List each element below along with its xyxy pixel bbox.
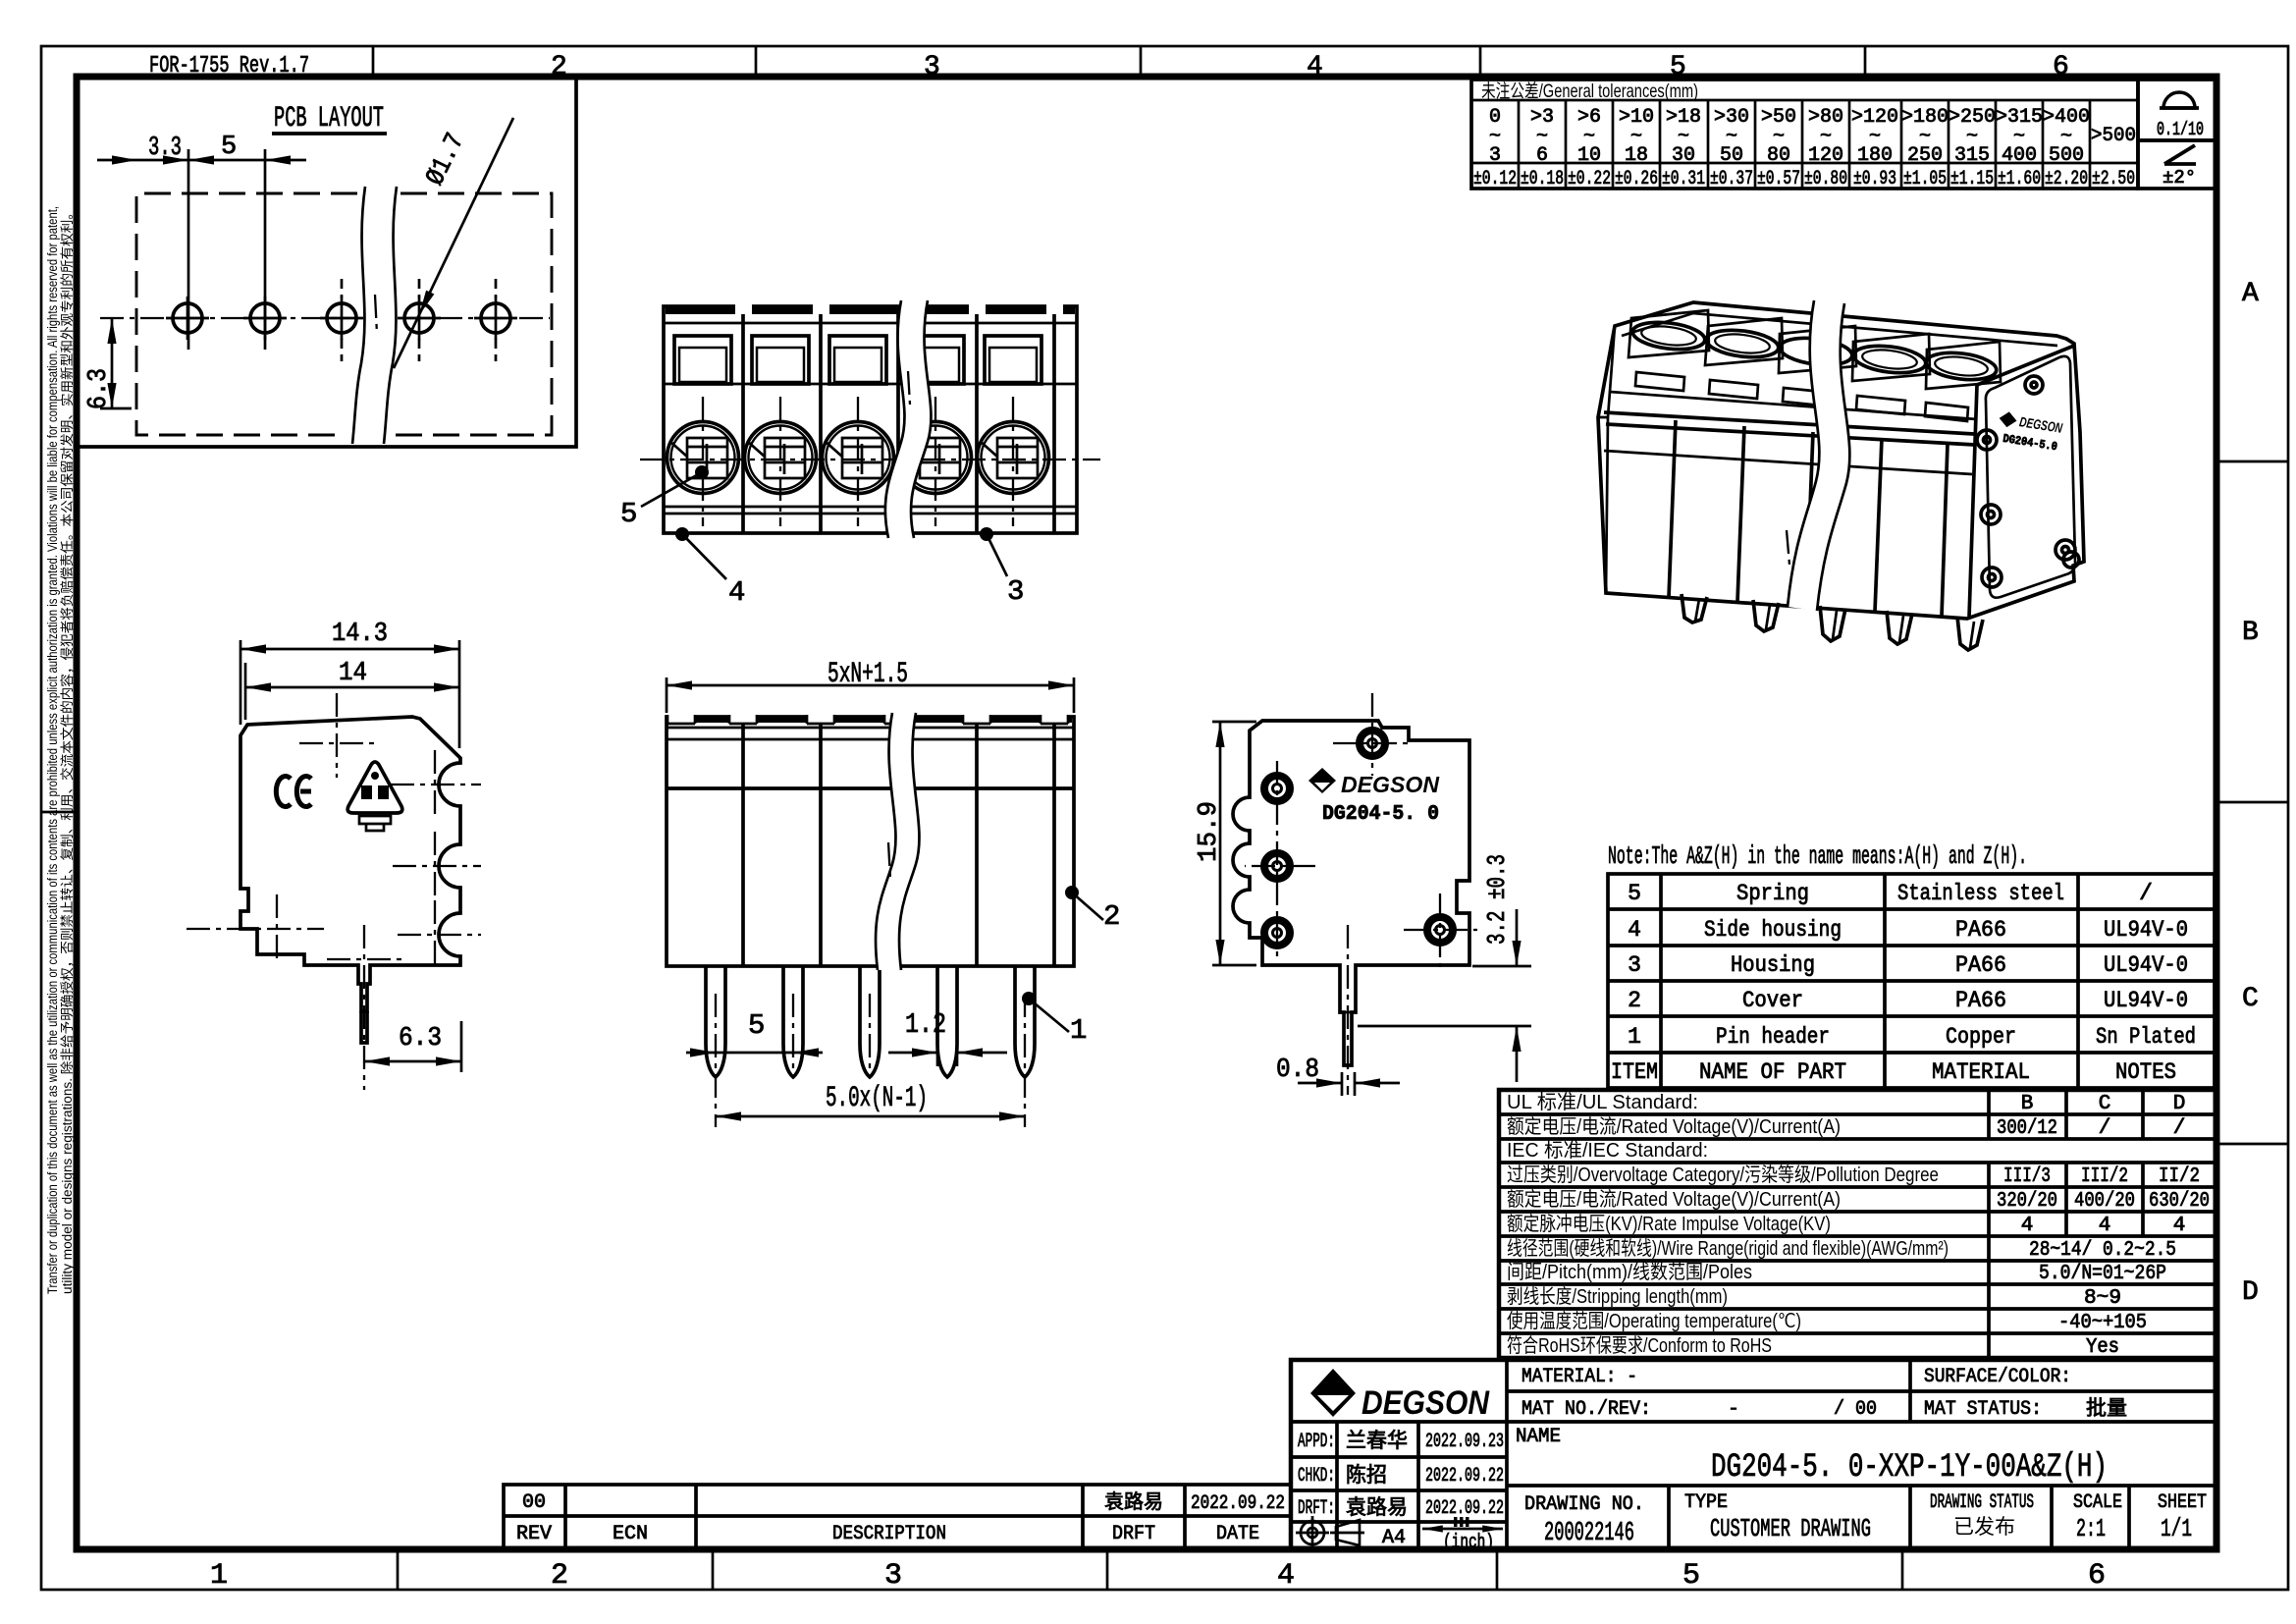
svg-text:8~9: 8~9 (2084, 1287, 2121, 1310)
svg-text:±2.50: ±2.50 (2092, 168, 2135, 190)
svg-text:陈招: 陈招 (1346, 1464, 1387, 1487)
svg-text:CHKD:: CHKD: (1298, 1465, 1335, 1488)
svg-text:III/2: III/2 (2081, 1165, 2128, 1188)
svg-text:符合RoHS环保要求/Conform to RoHS: 符合RoHS环保要求/Conform to RoHS (1507, 1334, 1772, 1357)
svg-text:DG204-5. 0: DG204-5. 0 (1322, 803, 1439, 826)
svg-text:6.3: 6.3 (399, 1024, 442, 1054)
svg-text:±0.12: ±0.12 (1473, 168, 1517, 190)
svg-text:2022.09.22: 2022.09.22 (1425, 1497, 1504, 1520)
svg-text:±2.20: ±2.20 (2045, 168, 2088, 190)
svg-text:4: 4 (728, 576, 745, 609)
svg-text:1.2: 1.2 (905, 1008, 946, 1041)
svg-text:III/3: III/3 (2003, 1165, 2051, 1188)
svg-text:Pin header: Pin header (1716, 1024, 1830, 1050)
svg-text:II/2: II/2 (2159, 1165, 2200, 1188)
svg-text:袁路易: 袁路易 (1104, 1490, 1163, 1513)
svg-text:额定脉冲电压(KV)/Rate Impulse Voltag: 额定脉冲电压(KV)/Rate Impulse Voltage(KV) (1507, 1213, 1831, 1235)
svg-text:2022.09.23: 2022.09.23 (1425, 1431, 1504, 1453)
svg-text:200022146: 200022146 (1544, 1519, 1634, 1548)
svg-text:2: 2 (1103, 900, 1120, 933)
svg-text:315: 315 (1954, 144, 1990, 167)
svg-text:±1.05: ±1.05 (1903, 168, 1947, 190)
svg-text:250: 250 (1907, 144, 1943, 167)
svg-text:Note:The A&Z(H) in the name me: Note:The A&Z(H) in the name means:A(H) a… (1608, 841, 2027, 871)
svg-text:5: 5 (748, 1009, 765, 1042)
svg-text:袁路易: 袁路易 (1346, 1496, 1408, 1519)
svg-text:50: 50 (1720, 144, 1743, 167)
svg-text:±0.22: ±0.22 (1568, 168, 1611, 190)
svg-text:5: 5 (1628, 881, 1641, 906)
svg-text:兰春华: 兰春华 (1346, 1430, 1408, 1452)
svg-text:DATE: DATE (1216, 1523, 1259, 1545)
svg-text:5xN+1.5: 5xN+1.5 (828, 658, 908, 691)
svg-text:±1.15: ±1.15 (1950, 168, 1994, 190)
svg-text:MAT STATUS:: MAT STATUS: (1924, 1398, 2042, 1421)
svg-text:3: 3 (884, 1559, 902, 1593)
svg-text:6: 6 (1536, 144, 1548, 167)
svg-text:-40~+105: -40~+105 (2058, 1312, 2147, 1334)
svg-text:A: A (2242, 279, 2259, 309)
svg-text:14.3: 14.3 (332, 620, 388, 649)
svg-text:4: 4 (1277, 1559, 1295, 1593)
svg-text:320/20: 320/20 (1997, 1190, 2057, 1213)
svg-text:/: / (2099, 1117, 2111, 1140)
svg-text:Side housing: Side housing (1704, 917, 1842, 943)
svg-text:±0.18: ±0.18 (1521, 168, 1564, 190)
svg-text:剥线长度/Stripping length(mm): 剥线长度/Stripping length(mm) (1507, 1285, 1728, 1308)
svg-text:utility model or designs regis: utility model or designs registrations. … (59, 206, 75, 1294)
svg-text:D: D (2173, 1093, 2186, 1115)
svg-text:/ 00: / 00 (1834, 1398, 1877, 1421)
svg-text:Copper: Copper (1946, 1024, 2016, 1050)
svg-text:1: 1 (210, 1559, 228, 1593)
svg-text:额定电压/电流/Rated Voltage(V)/Curre: 额定电压/电流/Rated Voltage(V)/Current(A) (1507, 1115, 1841, 1138)
svg-text:±0.57: ±0.57 (1757, 168, 1800, 190)
svg-text:2022.09.22: 2022.09.22 (1191, 1492, 1285, 1515)
svg-text:B: B (2021, 1093, 2034, 1115)
svg-text:4: 4 (2021, 1215, 2034, 1237)
svg-text:DEGSON: DEGSON (1341, 772, 1439, 797)
svg-text:Spring: Spring (1736, 881, 1809, 906)
svg-text:300/12: 300/12 (1997, 1117, 2057, 1140)
svg-text:1: 1 (1070, 1014, 1087, 1047)
svg-text:400/20: 400/20 (2074, 1190, 2135, 1213)
svg-text:Housing: Housing (1731, 952, 1815, 978)
svg-text:线径范围(硬线和软线)/Wire Range(rigid a: 线径范围(硬线和软线)/Wire Range(rigid and flexibl… (1507, 1237, 1949, 1260)
svg-text:±1.60: ±1.60 (1998, 168, 2041, 190)
svg-text:批量: 批量 (2086, 1397, 2127, 1420)
svg-text:UL94V-0: UL94V-0 (2104, 988, 2188, 1013)
svg-text:4: 4 (1307, 52, 1323, 82)
svg-text:SHEET: SHEET (2158, 1491, 2207, 1514)
svg-text:28~14/ 0.2~2.5: 28~14/ 0.2~2.5 (2029, 1239, 2176, 1262)
svg-text:/: / (2139, 881, 2153, 906)
svg-text:未注公差/General tolerances(mm): 未注公差/General tolerances(mm) (1481, 81, 1698, 102)
svg-text:UL94V-0: UL94V-0 (2104, 917, 2188, 943)
svg-text:0.1/10: 0.1/10 (2157, 119, 2204, 140)
svg-text:使用温度范围/Operating temperature(℃: 使用温度范围/Operating temperature(℃) (1507, 1310, 1801, 1332)
svg-text:PA66: PA66 (1955, 988, 2006, 1013)
svg-text:1: 1 (1628, 1024, 1641, 1050)
svg-text:DG204-5. 0-XXP-1Y-00A&Z(H): DG204-5. 0-XXP-1Y-00A&Z(H) (1711, 1449, 2108, 1487)
svg-text:3.3: 3.3 (148, 134, 182, 163)
svg-text:MATERIAL: MATERIAL (1932, 1059, 2030, 1085)
svg-text:SCALE: SCALE (2073, 1491, 2122, 1514)
svg-text:PA66: PA66 (1955, 952, 2006, 978)
svg-text:10: 10 (1577, 144, 1601, 167)
svg-text:±0.37: ±0.37 (1710, 168, 1753, 190)
svg-text:>500: >500 (2091, 125, 2136, 147)
svg-text:500: 500 (2049, 144, 2084, 167)
svg-text:Yes: Yes (2086, 1336, 2119, 1359)
svg-text:2: 2 (551, 1559, 568, 1593)
svg-text:Cover: Cover (1742, 988, 1803, 1013)
svg-text:15.9: 15.9 (1195, 801, 1224, 862)
svg-text:Transfer or duplication of thi: Transfer or duplication of this document… (45, 206, 60, 1294)
svg-text:6.3: 6.3 (84, 368, 114, 409)
svg-text:TYPE: TYPE (1684, 1491, 1728, 1514)
svg-text:14: 14 (339, 659, 367, 688)
svg-text:DEGSON: DEGSON (1362, 1384, 1490, 1422)
svg-text:4: 4 (2173, 1215, 2186, 1237)
svg-text:额定电压/电流/Rated Voltage(V)/Curre: 额定电压/电流/Rated Voltage(V)/Current(A) (1507, 1188, 1841, 1211)
svg-text:120: 120 (1808, 144, 1843, 167)
svg-text:180: 180 (1857, 144, 1893, 167)
svg-text:80: 80 (1767, 144, 1790, 167)
svg-text:DRAWING STATUS: DRAWING STATUS (1930, 1491, 2034, 1514)
svg-text:C: C (2242, 984, 2259, 1014)
svg-text:-: - (1728, 1398, 1739, 1421)
svg-text:PCB LAYOUT: PCB LAYOUT (274, 102, 384, 135)
svg-text:30: 30 (1672, 144, 1695, 167)
svg-text:0.8: 0.8 (1276, 1056, 1319, 1085)
svg-text:DRAWING NO.: DRAWING NO. (1524, 1493, 1644, 1516)
svg-text:5: 5 (620, 498, 637, 530)
svg-text:A4: A4 (1382, 1527, 1406, 1549)
svg-text:/: / (2173, 1117, 2186, 1140)
svg-text:NAME: NAME (1516, 1426, 1561, 1448)
svg-text:Stainless steel: Stainless steel (1897, 881, 2064, 906)
svg-text:2022.09.22: 2022.09.22 (1425, 1465, 1504, 1488)
svg-text:±0.31: ±0.31 (1662, 168, 1705, 190)
svg-text:ITEM: ITEM (1611, 1059, 1658, 1085)
svg-text:±0.93: ±0.93 (1853, 168, 1896, 190)
svg-text:18: 18 (1625, 144, 1648, 167)
svg-text:3: 3 (1489, 144, 1501, 167)
svg-text:400: 400 (2002, 144, 2037, 167)
svg-text:5: 5 (221, 133, 237, 162)
svg-text:4: 4 (1628, 917, 1641, 943)
svg-text:D: D (2242, 1277, 2259, 1308)
svg-text:CUSTOMER DRAWING: CUSTOMER DRAWING (1710, 1514, 1871, 1543)
svg-text:NAME OF PART: NAME OF PART (1699, 1059, 1846, 1085)
svg-text:3.2 ±0.3: 3.2 ±0.3 (1482, 854, 1512, 945)
svg-text:C: C (2099, 1093, 2111, 1115)
svg-text:过压类别/Overvoltage Category/污染等级: 过压类别/Overvoltage Category/污染等级/Pollution… (1507, 1164, 1939, 1186)
svg-text:Sn Plated: Sn Plated (2096, 1024, 2196, 1050)
svg-text:5.0x(N-1): 5.0x(N-1) (826, 1082, 928, 1115)
svg-text:NOTES: NOTES (2115, 1059, 2176, 1085)
svg-text:DESCRIPTION: DESCRIPTION (832, 1523, 946, 1545)
svg-text:3: 3 (924, 52, 940, 82)
svg-text:±0.26: ±0.26 (1615, 168, 1658, 190)
svg-text:已发布: 已发布 (1953, 1516, 2015, 1539)
svg-text:MATERIAL: -: MATERIAL: - (1522, 1366, 1637, 1388)
svg-text:(inch): (inch) (1443, 1532, 1494, 1554)
svg-text:APPD:: APPD: (1298, 1431, 1335, 1453)
svg-text:间距/Pitch(mm)/线数范围/Poles: 间距/Pitch(mm)/线数范围/Poles (1507, 1261, 1752, 1283)
svg-text:UL 标准/UL Standard:: UL 标准/UL Standard: (1507, 1091, 1698, 1113)
svg-text:630/20: 630/20 (2149, 1190, 2210, 1213)
svg-text:MAT NO./REV:: MAT NO./REV: (1522, 1398, 1651, 1421)
svg-text:DRFT: DRFT (1112, 1523, 1155, 1545)
svg-text:4: 4 (2099, 1215, 2111, 1237)
svg-text:00: 00 (522, 1491, 546, 1514)
svg-text:DRFT:: DRFT: (1298, 1497, 1335, 1520)
svg-text:5: 5 (1682, 1559, 1700, 1593)
svg-text:ECN: ECN (613, 1523, 648, 1545)
svg-text:5.0/N=01~26P: 5.0/N=01~26P (2039, 1263, 2166, 1285)
svg-text:PA66: PA66 (1955, 917, 2006, 943)
svg-text:2: 2 (1628, 988, 1641, 1013)
svg-text:B: B (2242, 618, 2259, 648)
svg-text:REV: REV (516, 1523, 552, 1545)
svg-text:SURFACE/COLOR:: SURFACE/COLOR: (1924, 1366, 2071, 1388)
svg-text:UL94V-0: UL94V-0 (2104, 952, 2188, 978)
svg-text:IEC 标准/IEC Standard:: IEC 标准/IEC Standard: (1507, 1139, 1708, 1162)
svg-text:3: 3 (1007, 575, 1024, 608)
svg-text:1/1: 1/1 (2161, 1514, 2192, 1543)
svg-text:±0.80: ±0.80 (1804, 168, 1847, 190)
svg-text:3: 3 (1628, 952, 1641, 978)
svg-text:±2°: ±2° (2163, 167, 2196, 189)
svg-text:6: 6 (2088, 1559, 2106, 1593)
svg-text:2:1: 2:1 (2076, 1514, 2106, 1543)
